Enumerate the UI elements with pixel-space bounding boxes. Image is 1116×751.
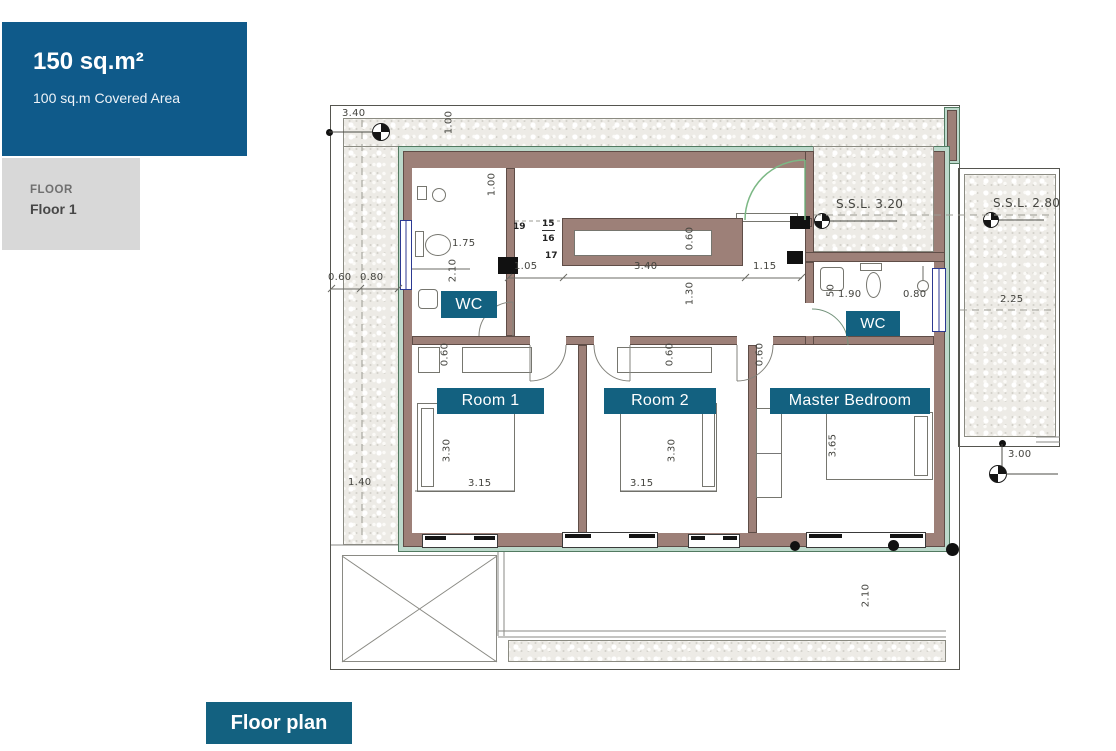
window-room1 [422, 534, 498, 548]
window-master [806, 532, 926, 548]
floor-heading: FLOOR [30, 184, 73, 196]
window-wc2-east [932, 268, 946, 332]
dim-site-top: 3.40 [342, 108, 365, 119]
room1-closet-a [418, 347, 440, 373]
stair-step-17: 17 [545, 251, 558, 261]
dim-wc2-a: 50 [826, 271, 837, 311]
room-chip-wc1: WC [441, 291, 497, 318]
dim-room2-width: 3.15 [630, 478, 653, 489]
entry-column [790, 216, 810, 229]
dim-toilet: 1.75 [452, 238, 475, 249]
stipple-side-terrace [964, 174, 1056, 437]
bathroom-east-wall [506, 168, 515, 336]
room-chip-wc2: WC [846, 311, 900, 336]
room1-closet-b [462, 347, 532, 373]
dim-closet-master: 0.60 [755, 335, 766, 375]
dim-hall-width: 1.30 [685, 274, 696, 314]
covered-area-label: 100 sq.m Covered Area [33, 90, 180, 106]
dim-room1-width: 3.15 [468, 478, 491, 489]
dim-closet-room2: 0.60 [665, 335, 676, 375]
master-wardrobe [756, 408, 782, 498]
wc2-toilet-bowl-icon [866, 272, 881, 298]
dim-hall-left: 1.05 [514, 261, 537, 272]
floor-value: Floor 1 [30, 201, 77, 217]
column-dot-b [888, 540, 899, 551]
area-panel: 150 sq.m² 100 sq.m Covered Area [2, 22, 247, 156]
survey-marker-terrace [983, 212, 999, 228]
master-pillow [914, 416, 928, 476]
room1-room2-wall [578, 345, 587, 533]
stair-step-19: 19 [513, 222, 526, 232]
dim-strip-a: 0.60 [328, 272, 351, 283]
dim-counter-depth: 0.60 [685, 219, 696, 259]
dim-terrace-bottom: 3.00 [1008, 449, 1031, 460]
room2-door-opening [594, 336, 630, 345]
survey-marker-terrace-south [989, 465, 1007, 483]
window-room2 [688, 534, 740, 548]
survey-marker-porch [814, 213, 830, 229]
stipple-top-band [343, 118, 955, 147]
plan-caption: Floor plan [206, 702, 352, 744]
room1-pillow [421, 408, 434, 487]
dim-bath-length: 2.10 [448, 251, 459, 291]
porch-south-wall [805, 252, 945, 262]
pergola-xbox [342, 555, 497, 662]
window-bathroom-west [400, 220, 412, 290]
room1-door-opening [530, 336, 566, 345]
dim-closet-room1: 0.60 [440, 335, 451, 375]
dim-terrace-width: 2.25 [1000, 294, 1023, 305]
datum-dot-west [326, 129, 333, 136]
shower-valve [417, 186, 427, 200]
room2-pillow [702, 408, 715, 487]
dim-hall-right: 1.15 [753, 261, 776, 272]
dim-wc2-c: 0.80 [903, 289, 926, 300]
dim-band-depth: 1.00 [444, 103, 455, 143]
dim-strip-b: 0.80 [360, 272, 383, 283]
porch-west-wall [805, 151, 814, 262]
floor-card: FLOOR Floor 1 [2, 158, 140, 250]
dim-master-bed-length: 3.65 [828, 426, 839, 466]
toilet-tank [415, 231, 424, 257]
dim-hall-mid: 3.40 [634, 261, 657, 272]
entry-threshold [736, 213, 798, 222]
floor-plan-page: 150 sq.m² 100 sq.m Covered Area FLOOR Fl… [0, 0, 1116, 751]
survey-marker-site [372, 123, 390, 141]
dim-shower: 1.00 [487, 165, 498, 205]
dim-veranda-depth: 2.10 [861, 576, 872, 616]
shower-head-icon [432, 188, 446, 202]
dim-bed1-length: 3.30 [442, 431, 453, 471]
room-chip-room2: Room 2 [604, 388, 716, 414]
column-dot-c [946, 543, 959, 556]
stair-step-15: 15 [542, 219, 555, 231]
stipple-bottom-strip [508, 640, 946, 662]
dim-bed2-length: 3.30 [667, 431, 678, 471]
dim-wc2-b: 1.90 [838, 289, 861, 300]
sink-icon [418, 289, 438, 309]
window-hall [562, 532, 658, 548]
dim-strip-c: 1.40 [348, 477, 371, 488]
room-chip-master: Master Bedroom [770, 388, 930, 414]
stair-step-16: 16 [542, 234, 555, 244]
wc2-door-opening [805, 303, 814, 336]
level-label-porch: S.S.L. 3.20 [836, 197, 903, 211]
level-label-terrace: S.S.L. 2.80 [993, 196, 1060, 210]
column-b [787, 251, 803, 264]
datum-dot-south [999, 440, 1006, 447]
room-chip-room1: Room 1 [437, 388, 544, 414]
wc2-toilet-tank [860, 263, 882, 271]
total-area-label: 150 sq.m² [33, 48, 144, 76]
column-dot-a [790, 541, 800, 551]
